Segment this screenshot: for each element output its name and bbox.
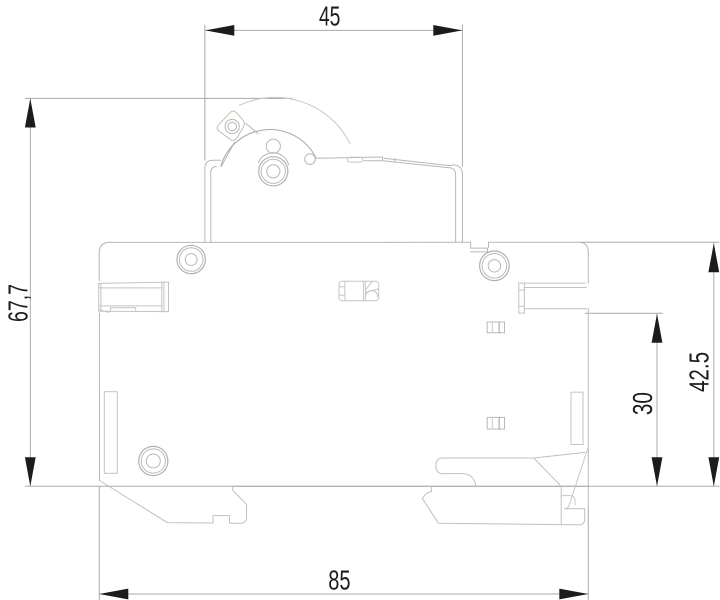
- svg-text:30: 30: [627, 392, 658, 415]
- svg-text:42.5: 42.5: [684, 352, 715, 392]
- svg-text:67,7: 67,7: [2, 284, 33, 322]
- svg-text:85: 85: [328, 564, 350, 595]
- svg-text:45: 45: [319, 1, 341, 32]
